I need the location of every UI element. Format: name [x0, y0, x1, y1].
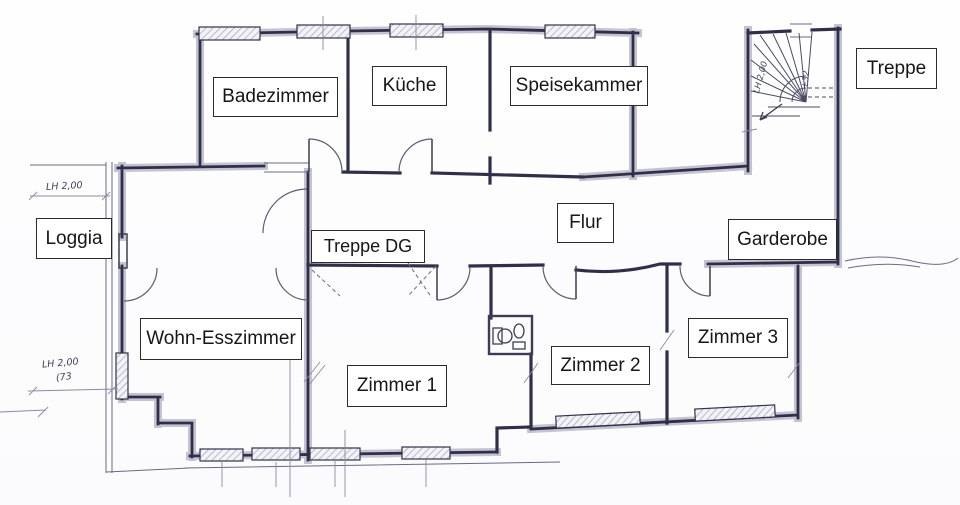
door-arc-zimmer2: [543, 266, 576, 299]
floorplan-page: Badezimmer Küche Speisekammer Treppe Log…: [0, 0, 960, 505]
window-icon: [402, 447, 450, 459]
door-arc-treppe-dg: [276, 268, 308, 300]
annotation-lh-top: LH 2,00: [46, 180, 83, 193]
window-icon: [200, 449, 243, 461]
window-icon: [390, 24, 443, 37]
wc-fixtures: [489, 316, 532, 354]
door-arc-wohnzimmer: [263, 189, 307, 233]
window-icon: [199, 27, 260, 40]
room-label-zimmer-3: Zimmer 3: [688, 318, 788, 358]
window-icon: [252, 448, 300, 460]
room-label-speisekammer: Speisekammer: [510, 66, 648, 106]
door-arc-badezimmer: [309, 139, 342, 172]
door-arc-zimmer3: [680, 266, 710, 296]
room-label-flur: Flur: [557, 203, 614, 243]
room-label-zimmer-2: Zimmer 2: [551, 346, 650, 385]
door-arc-zimmer1: [437, 267, 470, 300]
room-label-treppe-dg: Treppe DG: [311, 230, 425, 263]
toilet-icon: [498, 329, 512, 343]
room-label-wohn-esszimmer: Wohn-Esszimmer: [140, 318, 302, 360]
room-label-treppe: Treppe: [856, 48, 937, 89]
door-arc-kueche: [399, 139, 432, 172]
room-label-kueche: Küche: [372, 66, 447, 106]
window-icon: [310, 448, 360, 460]
stairs-direction-arrow-icon: [760, 104, 782, 120]
room-label-badezimmer: Badezimmer: [213, 77, 338, 117]
room-label-zimmer-1: Zimmer 1: [347, 365, 447, 407]
sink-icon: [513, 342, 525, 349]
window-icon: [297, 25, 350, 38]
sink-icon: [514, 324, 524, 338]
room-label-loggia: Loggia: [36, 218, 112, 259]
window-icon: [545, 25, 595, 38]
window-icon: [116, 353, 128, 399]
annotation-lh-bottom-note: (73: [55, 371, 72, 384]
room-label-garderobe: Garderobe: [728, 219, 837, 260]
door-arc-loggia: [124, 268, 157, 301]
